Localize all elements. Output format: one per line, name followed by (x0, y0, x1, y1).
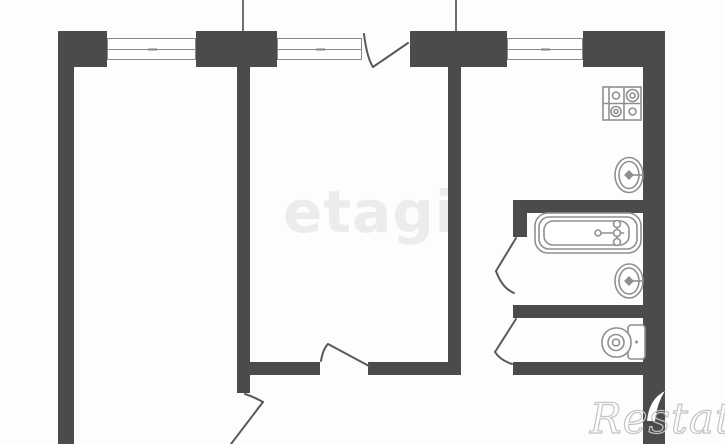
watermark-restate: Restate (590, 398, 725, 440)
restate-logo-leaf (0, 0, 725, 444)
floor-plan: etagi (0, 0, 725, 444)
